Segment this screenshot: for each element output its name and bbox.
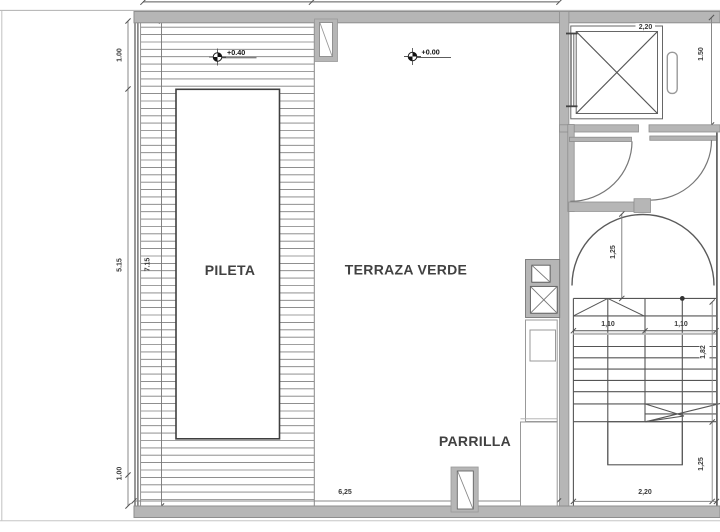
svg-text:1.00: 1.00 <box>117 48 124 62</box>
svg-text:1,25: 1,25 <box>610 245 617 259</box>
svg-text:6,25: 6,25 <box>338 489 352 496</box>
svg-text:1,25: 1,25 <box>698 457 705 471</box>
svg-text:1.50: 1.50 <box>698 47 705 61</box>
svg-text:2,20: 2,20 <box>638 489 652 496</box>
svg-text:5.15: 5.15 <box>117 258 124 272</box>
svg-text:+0.40: +0.40 <box>227 48 245 57</box>
svg-text:TERRAZA VERDE: TERRAZA VERDE <box>345 262 467 278</box>
svg-text:+0.00: +0.00 <box>422 47 440 56</box>
svg-text:PARRILLA: PARRILLA <box>439 433 511 449</box>
svg-text:PILETA: PILETA <box>205 262 256 278</box>
svg-text:2,20: 2,20 <box>639 24 653 31</box>
svg-text:1,82: 1,82 <box>700 345 707 359</box>
svg-text:7.15: 7.15 <box>145 258 152 272</box>
svg-text:1.00: 1.00 <box>117 467 124 481</box>
svg-text:1,10: 1,10 <box>674 321 688 328</box>
svg-text:1,10: 1,10 <box>601 321 615 328</box>
